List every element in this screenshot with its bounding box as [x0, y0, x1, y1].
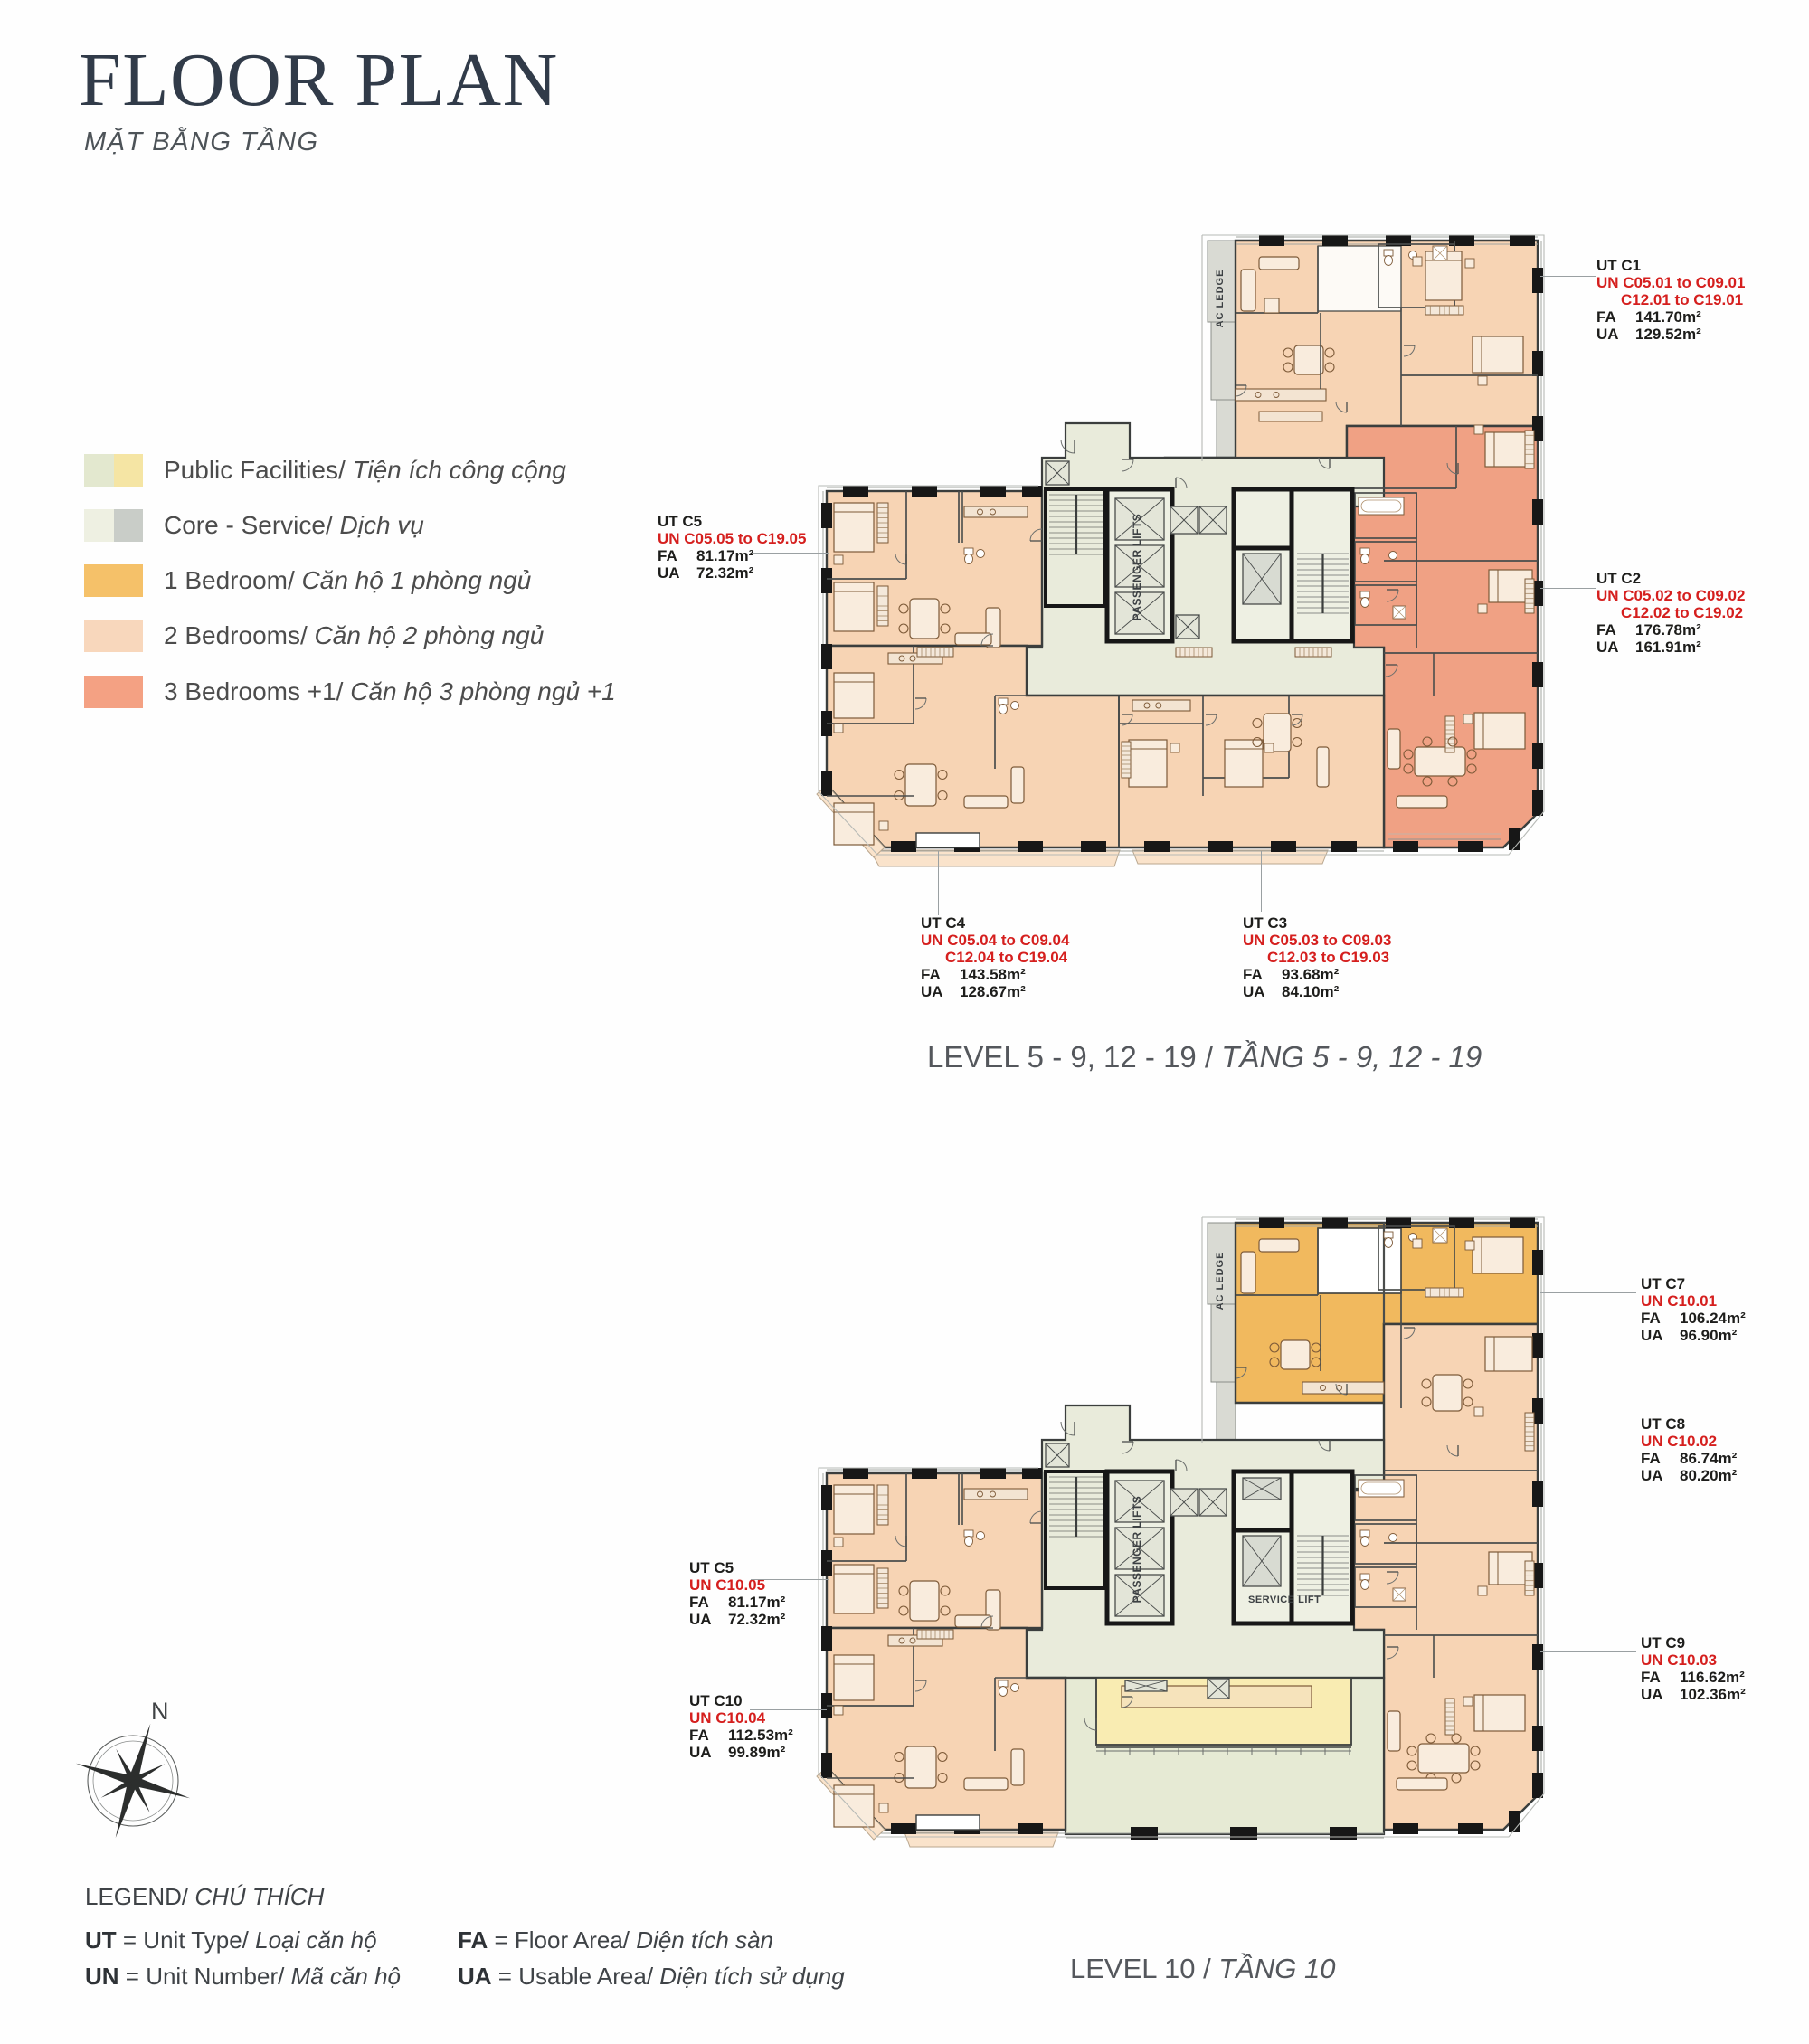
svg-text:AC LEDGE: AC LEDGE: [1215, 270, 1226, 328]
svg-text:AC LEDGE: AC LEDGE: [1215, 1252, 1226, 1311]
svg-text:PASSENGER LIFTS: PASSENGER LIFTS: [1131, 514, 1143, 621]
svg-text:PASSENGER LIFTS: PASSENGER LIFTS: [1131, 1496, 1143, 1604]
svg-text:N: N: [151, 1699, 169, 1725]
svg-text:SERVICE LIFT: SERVICE LIFT: [1248, 1595, 1321, 1605]
